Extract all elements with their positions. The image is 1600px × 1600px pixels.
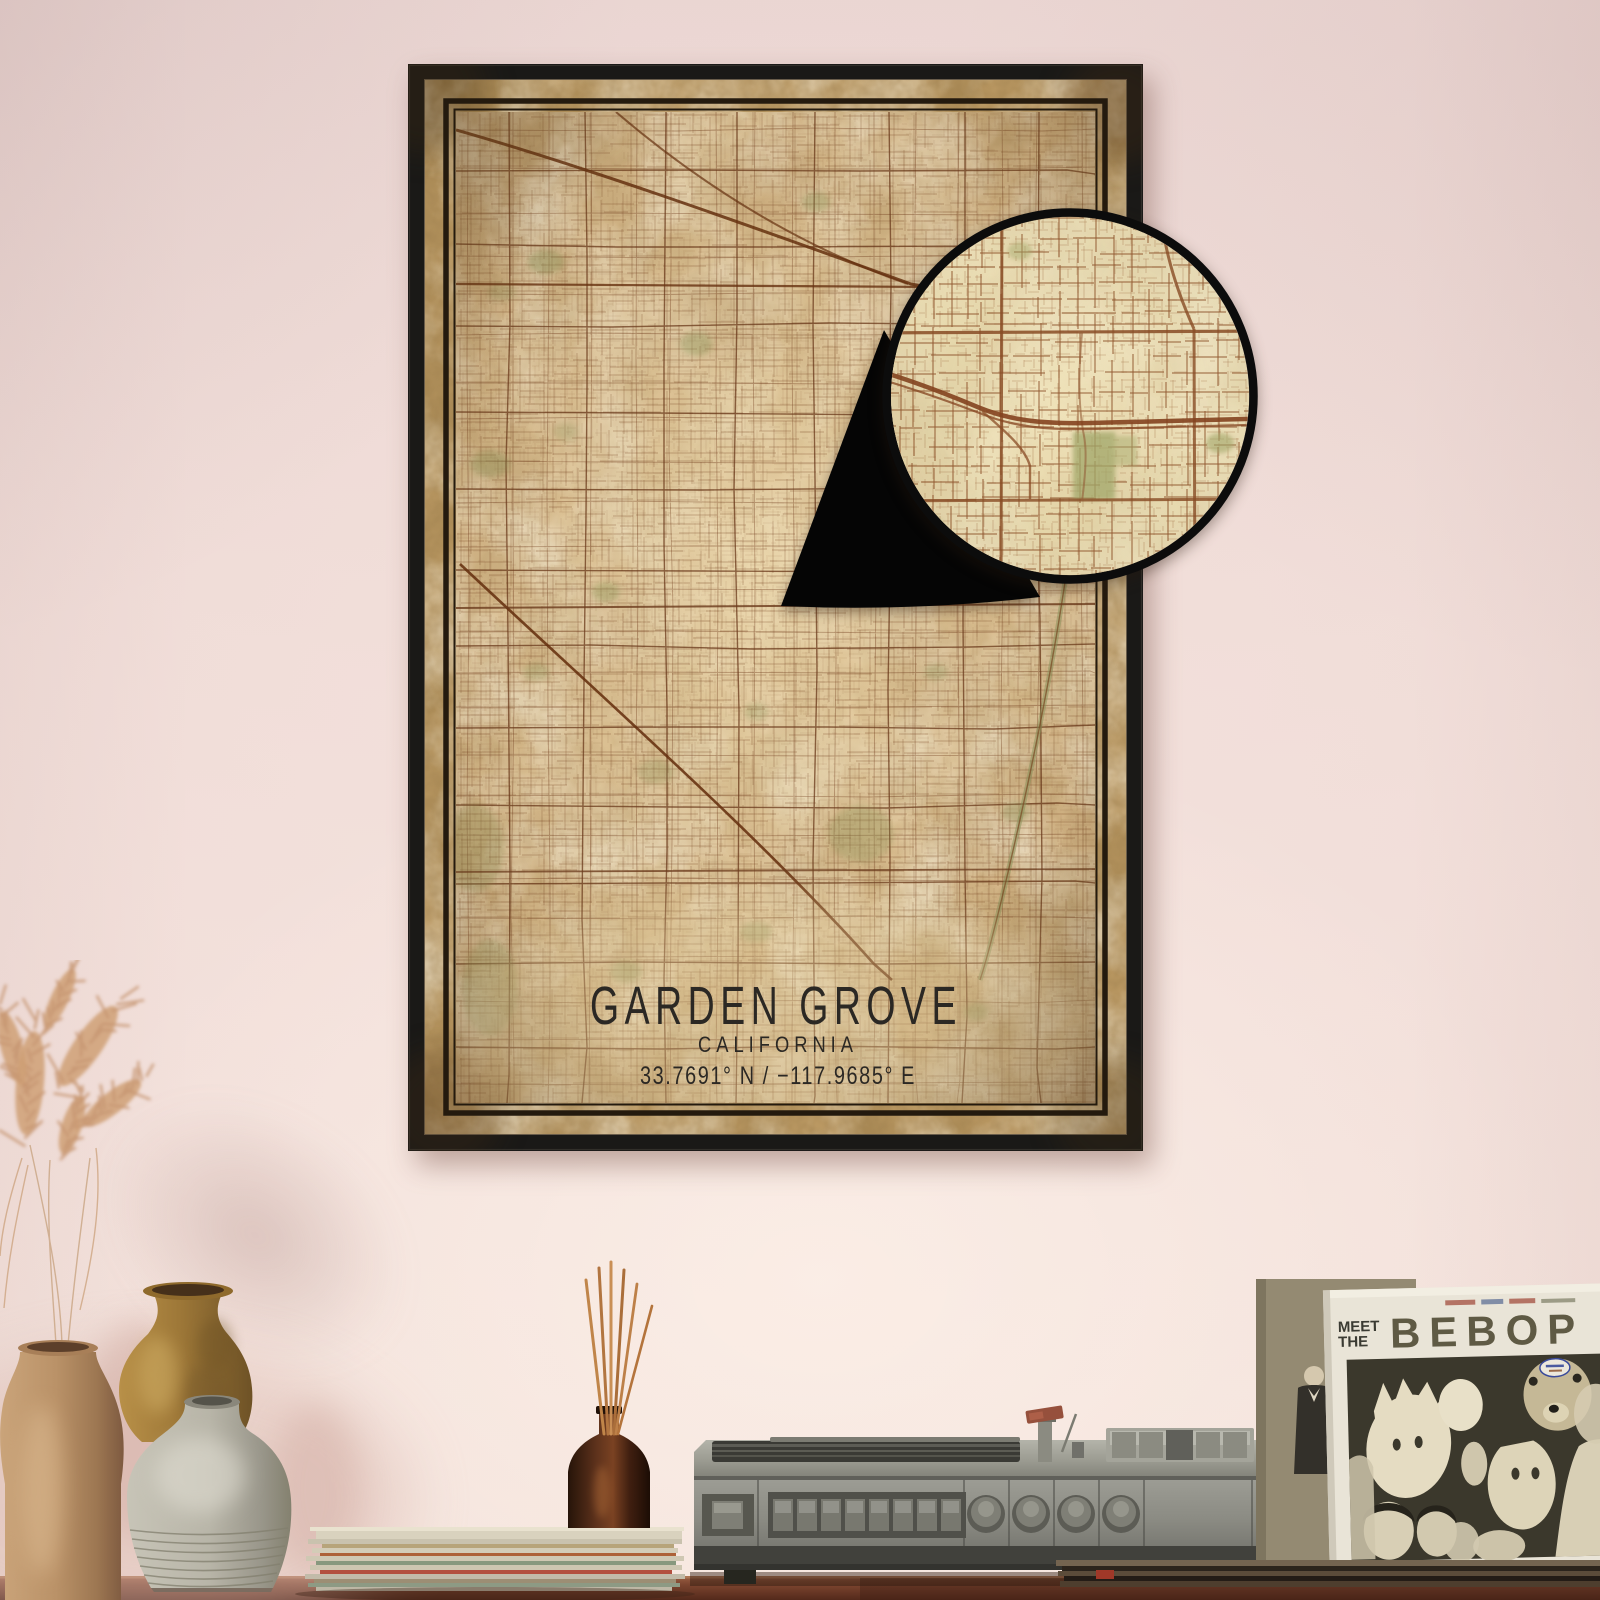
svg-text:BEBOP: BEBOP — [1389, 1305, 1584, 1357]
svg-text:THE: THE — [1338, 1333, 1368, 1351]
